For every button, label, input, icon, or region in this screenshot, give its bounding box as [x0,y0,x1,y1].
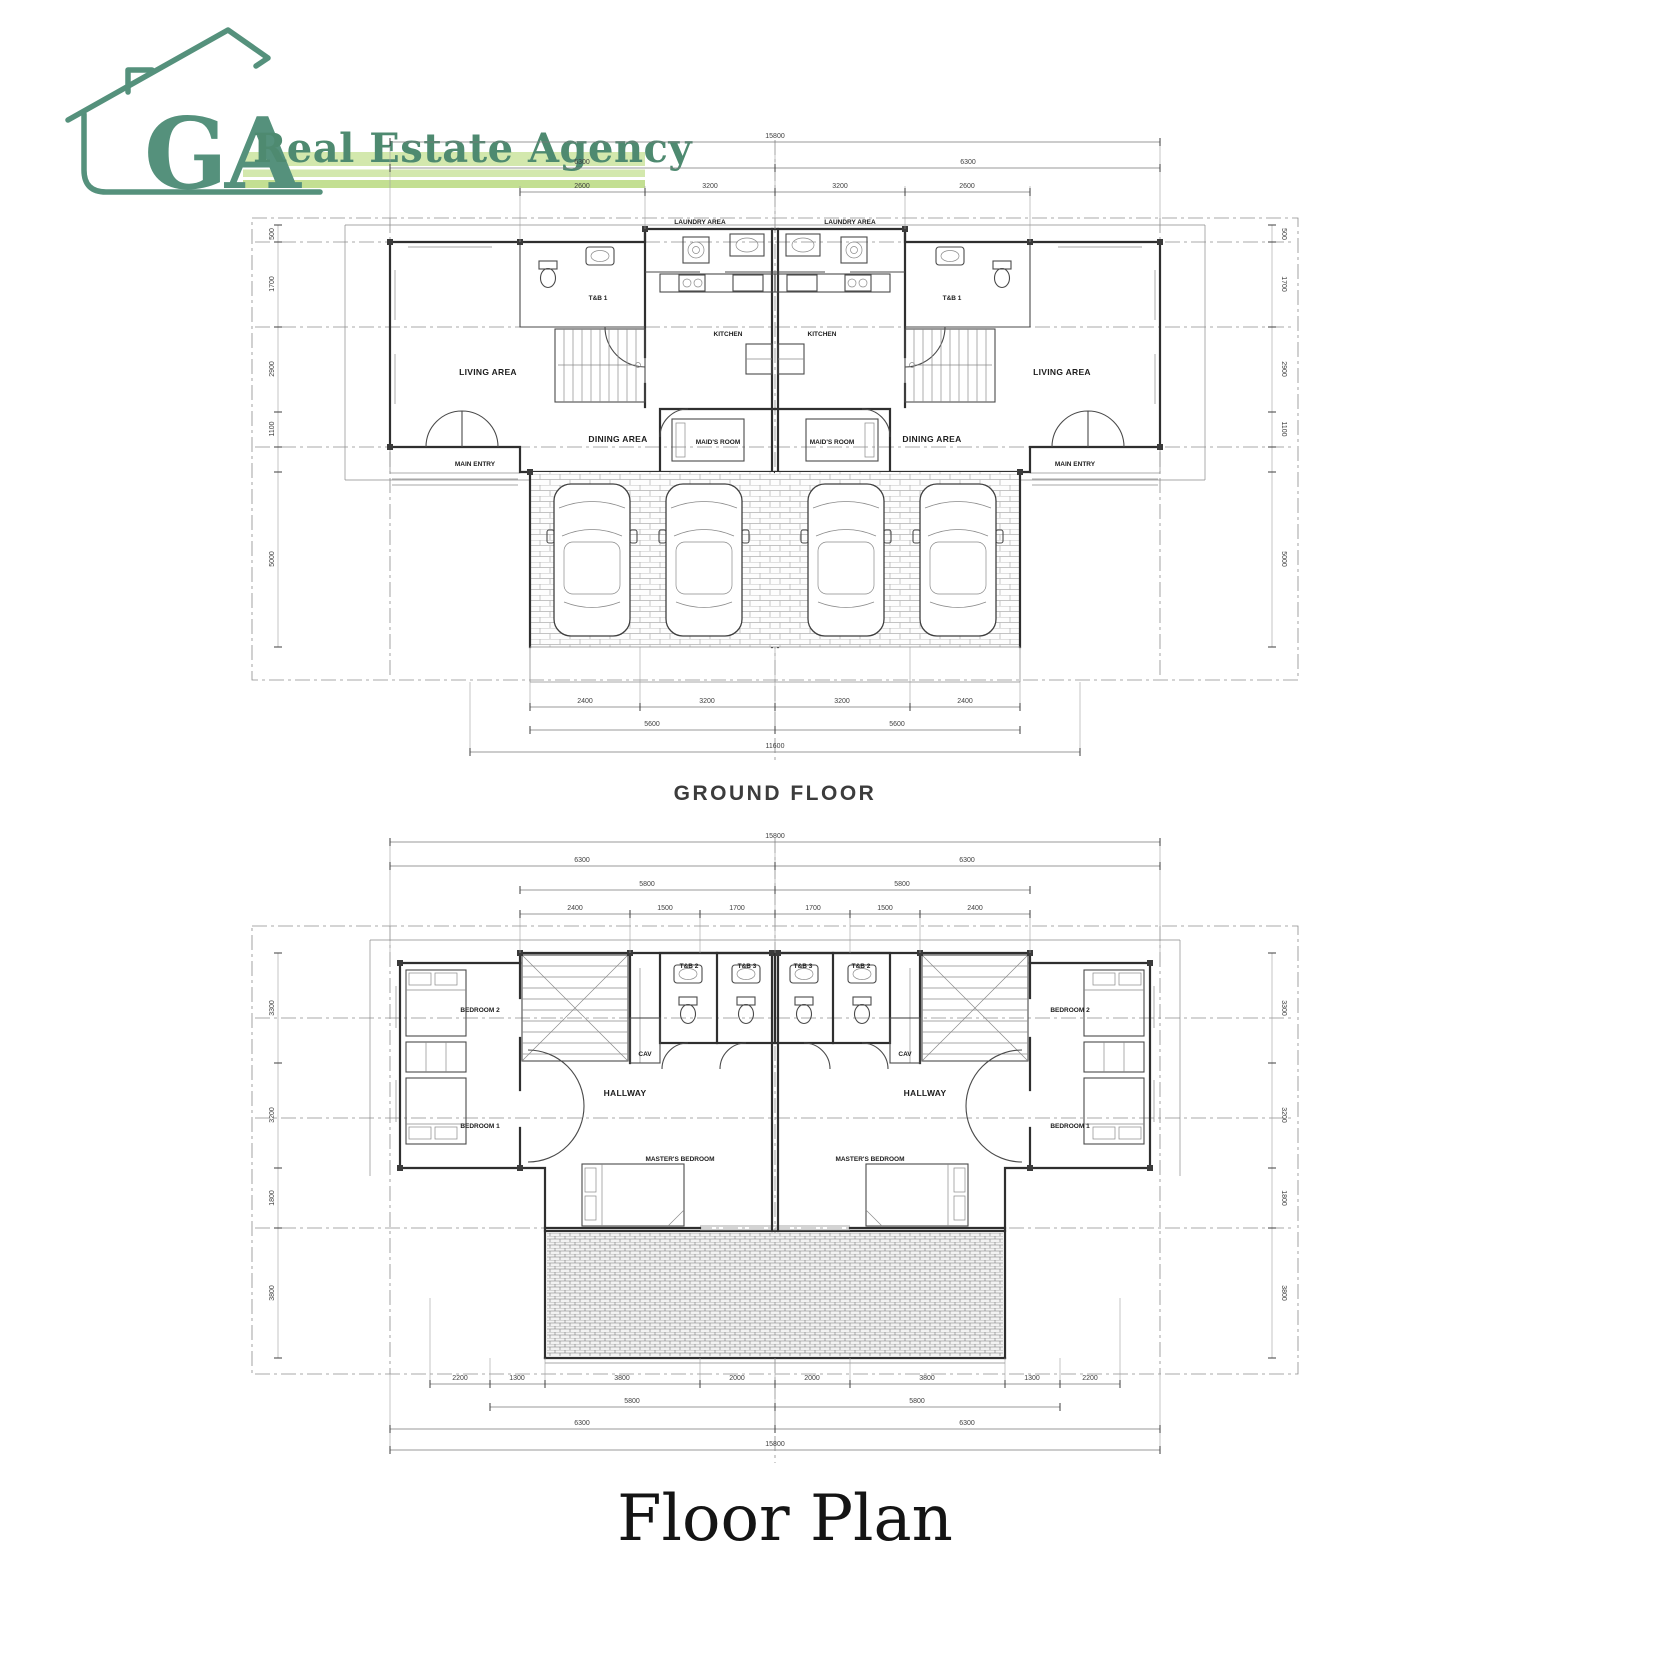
svg-text:500: 500 [269,228,276,240]
room-label-dining: DINING AREA [588,434,647,444]
svg-text:3200: 3200 [699,698,715,705]
svg-text:1800: 1800 [269,1190,276,1206]
room-label-hallway: HALLWAY [604,1088,647,1098]
room-label-cav: CAV [638,1051,652,1058]
room-label-bedroom2: BEDROOM 2 [1050,1007,1090,1014]
svg-text:1100: 1100 [269,421,276,436]
svg-text:2400: 2400 [957,698,973,705]
room-label-dining: DINING AREA [902,434,961,444]
room-label-tb1: T&B 1 [943,295,962,302]
room-label-master: MASTER'S BEDROOM [645,1156,714,1163]
room-label-living: LIVING AREA [459,367,517,377]
svg-text:1700: 1700 [805,905,821,912]
svg-text:3200: 3200 [832,183,848,190]
room-label-living: LIVING AREA [1033,367,1091,377]
svg-text:2400: 2400 [567,905,583,912]
svg-text:1700: 1700 [269,276,276,292]
svg-text:1300: 1300 [509,1375,525,1382]
svg-text:6300: 6300 [574,857,590,864]
svg-text:3800: 3800 [919,1375,935,1382]
svg-text:5600: 5600 [644,721,660,728]
svg-text:6300: 6300 [574,1420,590,1427]
svg-text:2600: 2600 [574,183,590,190]
room-label-tb2: T&B 2 [680,963,699,970]
room-label-laundry: LAUNDRY AREA [674,219,726,226]
svg-text:2400: 2400 [577,698,593,705]
svg-text:1300: 1300 [1024,1375,1040,1382]
svg-text:3800: 3800 [1280,1285,1287,1301]
svg-text:5800: 5800 [624,1398,640,1405]
svg-text:6300: 6300 [959,857,975,864]
svg-text:6300: 6300 [574,159,590,166]
svg-text:2600: 2600 [959,183,975,190]
room-label-bedroom1: BEDROOM 1 [460,1123,500,1130]
floor-plan-title: Floor Plan [230,1482,1340,1556]
ground-floor-plan: 15800 6300 6300 2600 3200 3200 2600 2400… [230,122,1450,822]
svg-text:11600: 11600 [766,743,785,750]
svg-text:5800: 5800 [894,881,910,888]
svg-text:3800: 3800 [614,1375,630,1382]
svg-text:5800: 5800 [639,881,655,888]
ground-floor-unit-left [387,226,775,682]
room-label-bedroom1: BEDROOM 1 [1050,1123,1090,1130]
balcony [545,1231,1005,1363]
second-floor-plan: 15800 6300 6300 5800 5800 2400 1500 1700… [230,828,1450,1473]
svg-text:3200: 3200 [269,1107,276,1123]
svg-text:15800: 15800 [765,833,785,840]
svg-text:5600: 5600 [889,721,905,728]
svg-text:15800: 15800 [765,1441,785,1448]
svg-text:5000: 5000 [269,551,276,567]
svg-text:6300: 6300 [959,1420,975,1427]
svg-text:3300: 3300 [1280,1000,1287,1016]
svg-text:2900: 2900 [269,361,276,377]
svg-text:5000: 5000 [1280,551,1287,567]
svg-text:1500: 1500 [877,905,893,912]
room-label-maids: MAID'S ROOM [810,439,855,446]
svg-text:2200: 2200 [452,1375,468,1382]
room-label-entry: MAIN ENTRY [455,461,496,468]
svg-text:6300: 6300 [960,159,976,166]
svg-text:2000: 2000 [804,1375,820,1382]
room-label-master: MASTER'S BEDROOM [835,1156,904,1163]
svg-text:3200: 3200 [1280,1107,1287,1123]
svg-text:2000: 2000 [729,1375,745,1382]
room-label-cav: CAV [898,1051,912,1058]
room-label-kitchen: KITCHEN [808,331,837,338]
room-label-tb3: T&B 3 [794,963,813,970]
ground-floor-title: GROUND FLOOR [674,782,877,805]
svg-text:5800: 5800 [909,1398,925,1405]
svg-text:1700: 1700 [1280,276,1287,292]
svg-text:3800: 3800 [269,1285,276,1301]
room-label-maids: MAID'S ROOM [696,439,741,446]
svg-text:3200: 3200 [702,183,718,190]
svg-text:1800: 1800 [1280,1190,1287,1206]
room-label-laundry: LAUNDRY AREA [824,219,876,226]
svg-text:1500: 1500 [657,905,673,912]
svg-text:3300: 3300 [269,1000,276,1016]
svg-text:2900: 2900 [1280,361,1287,377]
svg-text:3200: 3200 [834,698,850,705]
room-label-bedroom2: BEDROOM 2 [460,1007,500,1014]
svg-text:15800: 15800 [765,133,785,140]
ground-floor-unit-right [775,226,1163,682]
room-label-entry: MAIN ENTRY [1055,461,1096,468]
room-label-kitchen: KITCHEN [714,331,743,338]
svg-text:1100: 1100 [1280,421,1287,436]
svg-text:1700: 1700 [729,905,745,912]
svg-text:2200: 2200 [1082,1375,1098,1382]
svg-text:2400: 2400 [967,905,983,912]
room-label-tb3: T&B 3 [738,963,757,970]
room-label-tb2: T&B 2 [852,963,871,970]
svg-text:500: 500 [1280,228,1287,240]
room-label-hallway: HALLWAY [904,1088,947,1098]
room-label-tb1: T&B 1 [589,295,608,302]
